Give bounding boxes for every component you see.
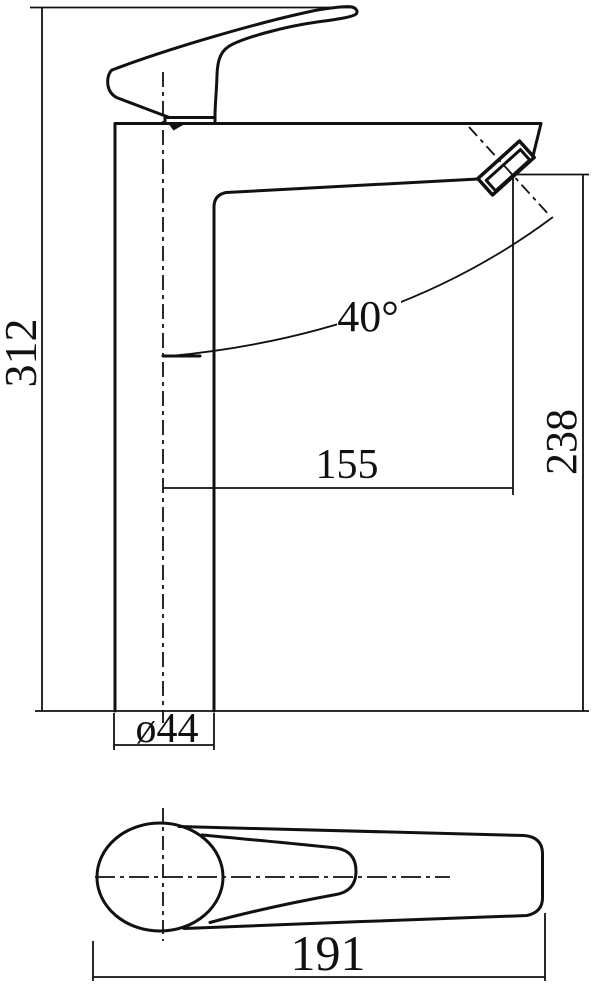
handle-lever-outline (112, 7, 357, 117)
cap-front-wedge (169, 125, 184, 131)
dim-label-outlet-height: 238 (537, 409, 586, 475)
dim-label-spout-reach: 155 (316, 442, 379, 488)
handle-blade-inner (202, 835, 356, 923)
handle-nose-outline (108, 70, 168, 117)
spout-top-edge (115, 124, 541, 157)
dim-label-total-height: 312 (0, 319, 46, 388)
faucet-drawing-svg: 312 155 238 40° ø44 191 (0, 0, 600, 984)
technical-drawing: 312 155 238 40° ø44 191 (0, 0, 600, 984)
dim-label-base-diameter: ø44 (136, 706, 199, 752)
faucet-side-view (108, 7, 541, 711)
dim-label-spout-angle: 40° (337, 292, 399, 341)
dim-label-handle-length: 191 (291, 925, 366, 981)
